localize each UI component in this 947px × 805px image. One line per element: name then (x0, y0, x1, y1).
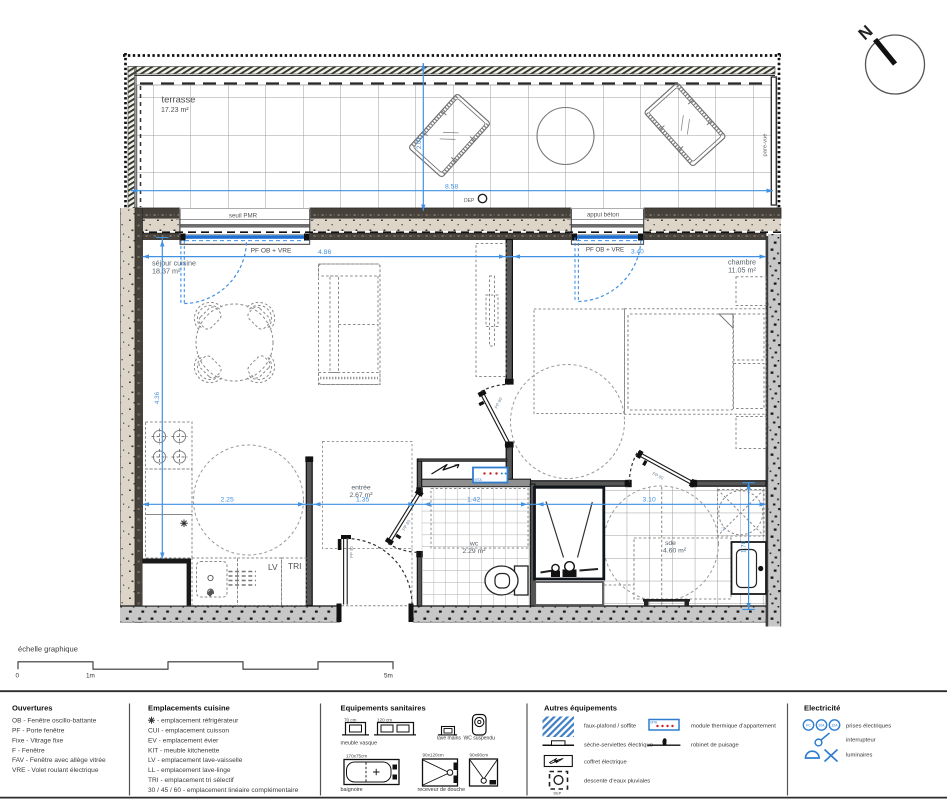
svg-text:MTA: MTA (651, 721, 658, 725)
svg-text:120 cm: 120 cm (377, 717, 392, 722)
svg-text:DEP: DEP (464, 198, 475, 204)
svg-text:- emplacement réfrigérateur: - emplacement réfrigérateur (157, 718, 239, 725)
svg-text:17.23 m²: 17.23 m² (161, 107, 189, 114)
svg-text:descente d'eaux pluviales: descente d'eaux pluviales (584, 779, 650, 785)
svg-text:MTA: MTA (475, 478, 483, 482)
svg-text:FAV - Fenêtre avec allège vitr: FAV - Fenêtre avec allège vitrée (12, 757, 106, 764)
svg-text:module thermique d'appartement: module thermique d'appartement (691, 724, 776, 730)
svg-text:1.70: 1.70 (741, 540, 748, 553)
svg-text:Emplacements cuisine: Emplacements cuisine (148, 704, 230, 713)
svg-text:4.36: 4.36 (154, 391, 161, 404)
svg-text:PF OB + VRE: PF OB + VRE (586, 247, 624, 254)
svg-text:seuil PMR: seuil PMR (229, 213, 258, 220)
svg-text:pare-vue: pare-vue (763, 134, 769, 157)
svg-text:TRI - emplacement tri sélectif: TRI - emplacement tri sélectif (148, 777, 234, 784)
svg-text:PC: PC (806, 724, 811, 728)
svg-text:30 / 45 / 60 - emplacement lin: 30 / 45 / 60 - emplacement linéaire comp… (148, 787, 299, 794)
svg-text:LL - emplacement lave-linge: LL - emplacement lave-linge (148, 767, 231, 774)
svg-text:70 cm: 70 cm (344, 717, 357, 722)
svg-text:sde: sde (665, 540, 676, 547)
svg-text:lave mains: lave mains (437, 736, 461, 742)
svg-text:faux-plafond / soffite: faux-plafond / soffite (584, 724, 636, 730)
svg-text:meuble vasque: meuble vasque (341, 741, 378, 747)
svg-text:KIT - meuble kitchenette: KIT - meuble kitchenette (148, 747, 220, 754)
svg-text:wc: wc (469, 541, 479, 548)
svg-text:90x120cm: 90x120cm (423, 753, 444, 758)
svg-text:receveur de douche: receveur de douche (418, 787, 466, 793)
svg-text:entrée: entrée (351, 485, 370, 492)
svg-text:90x90cm: 90x90cm (470, 753, 489, 758)
svg-text:interrupteur: interrupteur (846, 738, 876, 744)
svg-text:OB - Fenêtre oscillo-battante: OB - Fenêtre oscillo-battante (12, 718, 97, 725)
svg-text:4.60 m²: 4.60 m² (663, 548, 687, 555)
svg-text:baignoire: baignoire (341, 787, 363, 793)
svg-text:échelle graphique: échelle graphique (18, 645, 78, 654)
svg-text:PF - Porte fenêtre: PF - Porte fenêtre (12, 728, 65, 735)
svg-text:LL: LL (720, 525, 725, 531)
svg-text:F - Fenêtre: F - Fenêtre (12, 747, 45, 754)
svg-text:coffret électrique: coffret électrique (584, 760, 627, 766)
svg-text:PP 90: PP 90 (349, 546, 354, 558)
svg-text:LV - emplacement lave-vaissell: LV - emplacement lave-vaisselle (148, 757, 243, 764)
svg-text:CUI - emplacement cuisson: CUI - emplacement cuisson (148, 728, 229, 735)
svg-text:PF OB + VRE: PF OB + VRE (251, 248, 292, 255)
svg-text:4.86: 4.86 (318, 249, 331, 256)
svg-text:5m: 5m (384, 673, 393, 680)
svg-text:TRI: TRI (288, 561, 302, 571)
svg-text:Equipements sanitaires: Equipements sanitaires (341, 704, 426, 713)
svg-text:1m: 1m (86, 673, 95, 680)
svg-text:0: 0 (16, 673, 20, 680)
svg-text:11.05 m²: 11.05 m² (728, 266, 756, 275)
svg-text:DEP: DEP (554, 792, 562, 796)
svg-text:Fixe - Vitrage fixe: Fixe - Vitrage fixe (12, 737, 64, 744)
svg-text:1.35: 1.35 (356, 497, 369, 504)
svg-text:appui béton: appui béton (587, 212, 620, 219)
svg-text:Ouvertures: Ouvertures (12, 704, 53, 713)
svg-text:luminaires: luminaires (846, 753, 873, 759)
svg-text:VRE - Volet roulant électrique: VRE - Volet roulant électrique (12, 767, 99, 774)
svg-text:8.58: 8.58 (445, 184, 458, 191)
svg-text:Electricité: Electricité (804, 704, 840, 713)
svg-text:1.42: 1.42 (467, 497, 480, 504)
svg-text:3.40: 3.40 (631, 249, 644, 256)
svg-text:32A: 32A (831, 724, 838, 728)
svg-text:2.25: 2.25 (221, 497, 234, 504)
svg-text:18.37 m²: 18.37 m² (152, 267, 181, 276)
svg-text:robinet de puisage: robinet de puisage (691, 743, 739, 749)
svg-text:prises électriques: prises électriques (846, 724, 891, 730)
svg-text:sèche-serviettes électrique: sèche-serviettes électrique (584, 743, 653, 749)
svg-text:terrasse: terrasse (162, 94, 196, 105)
svg-text:170x75cm: 170x75cm (346, 754, 367, 759)
svg-text:EV - emplacement évier: EV - emplacement évier (148, 737, 219, 744)
svg-text:Autres équipements: Autres équipements (544, 704, 617, 713)
svg-text:2.01: 2.01 (416, 136, 423, 149)
svg-text:LV: LV (268, 562, 278, 572)
svg-text:20A: 20A (818, 724, 825, 728)
svg-text:3.10: 3.10 (643, 496, 656, 503)
svg-text:2.29 m²: 2.29 m² (462, 548, 486, 555)
svg-text:WC suspendu: WC suspendu (464, 736, 496, 742)
